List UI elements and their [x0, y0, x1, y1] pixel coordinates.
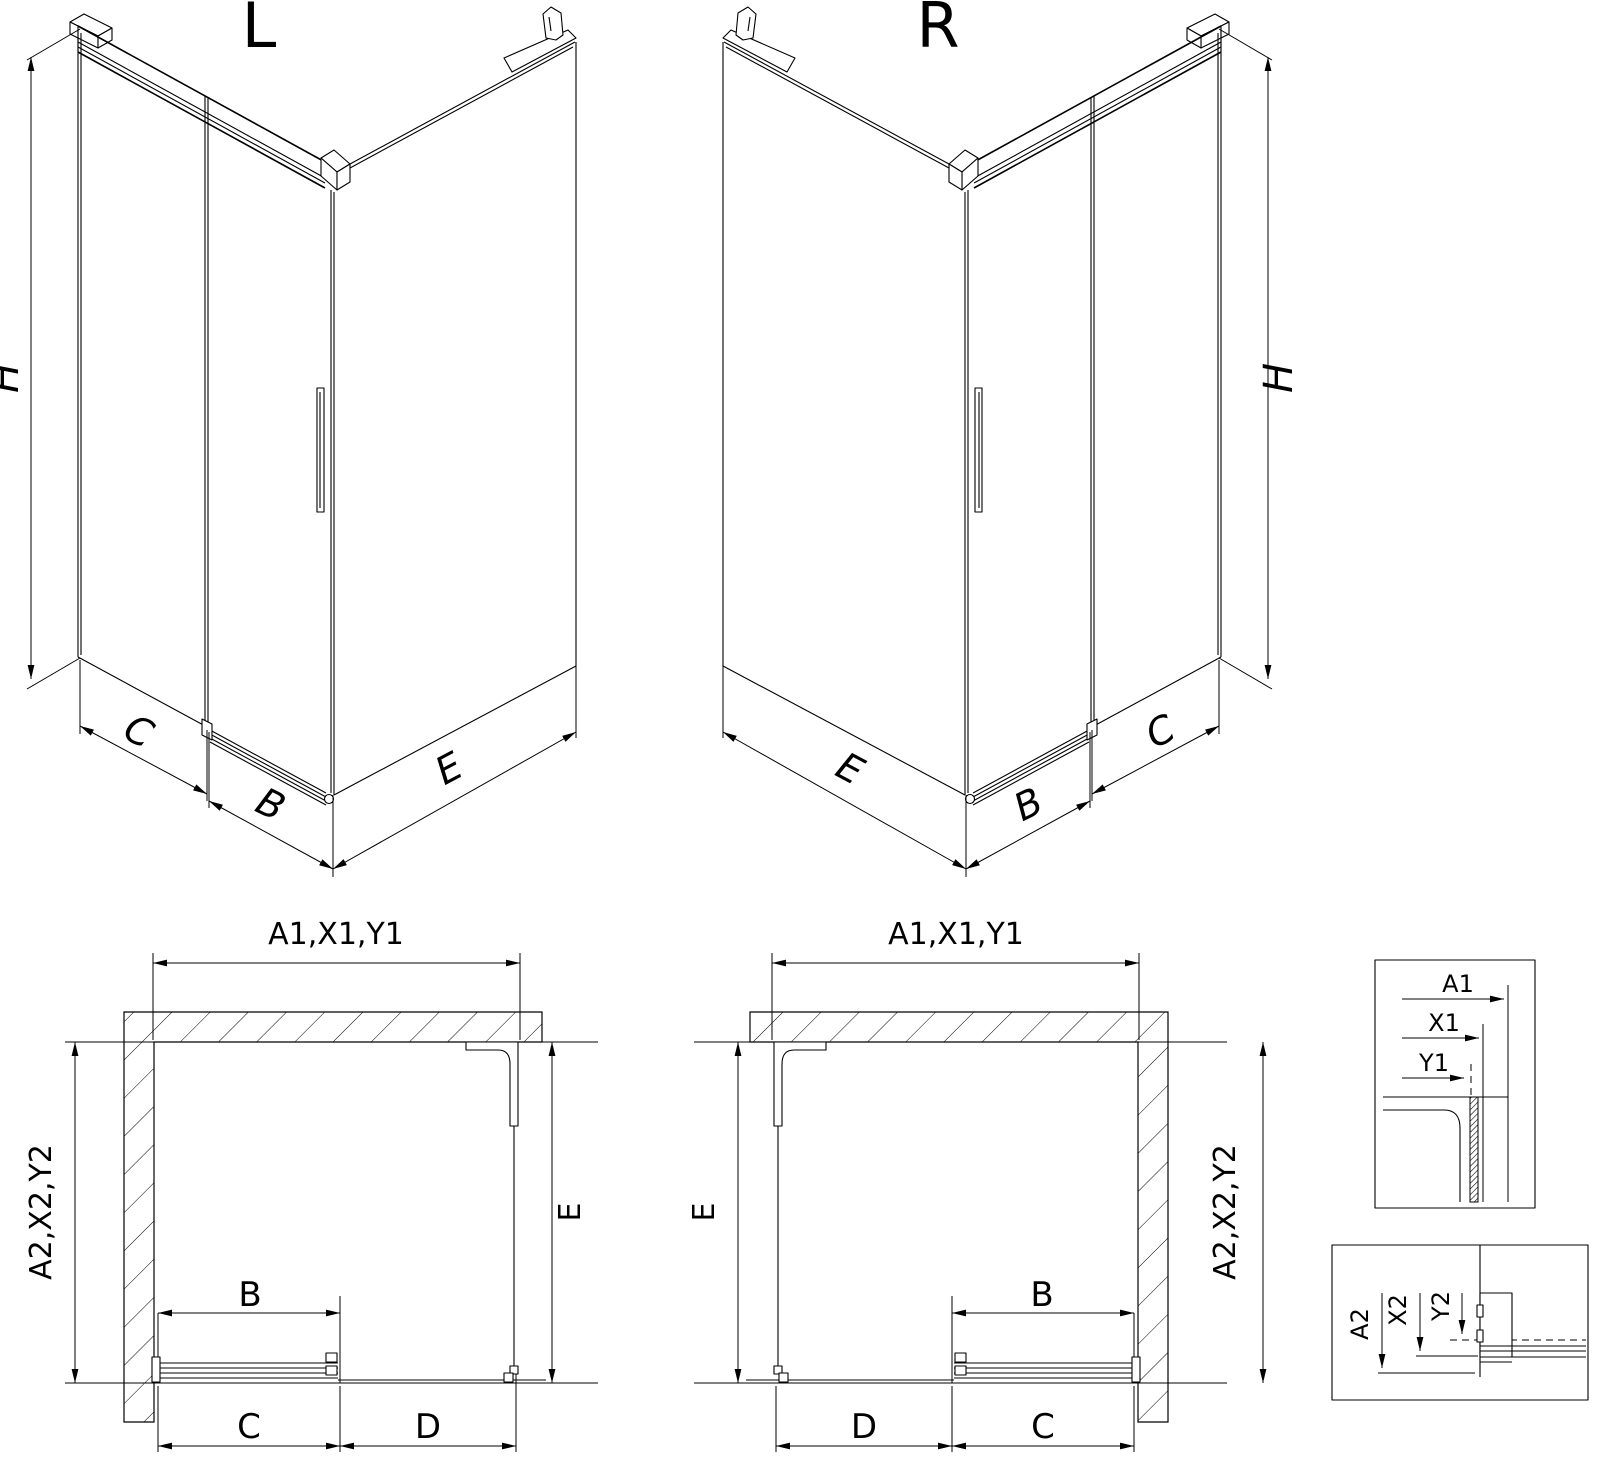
iso-left-label-e: E — [428, 743, 470, 793]
plan-view-left: A1,X1,Y1 A2,X2,Y2 E B — [24, 917, 598, 1452]
detail-bottom-label-x2: X2 — [1384, 1294, 1412, 1326]
detail-top-label-a1: A1 — [1442, 970, 1474, 998]
plan-right-dimension-e: E — [687, 1042, 738, 1383]
view-title-left: L — [242, 0, 277, 62]
plan-left-label-b: B — [238, 1275, 261, 1315]
iso-left-label-b: B — [249, 779, 292, 830]
plan-left-door-rail — [152, 1353, 546, 1382]
plan-left-label-d: D — [415, 1407, 441, 1447]
detail-top-glass-edge — [1470, 1097, 1478, 1202]
plan-left-dimension-b: B — [158, 1275, 340, 1383]
plan-left-dimension-a2: A2,X2,Y2 — [24, 1042, 75, 1383]
detail-top-dimension-y1: Y1 — [1402, 1049, 1471, 1097]
plan-left-label-a1: A1,X1,Y1 — [268, 917, 404, 952]
iso-right-geometry — [723, 7, 1272, 877]
iso-view-left: L H C B E — [0, 0, 576, 877]
view-title-right: R — [916, 0, 959, 62]
plan-right-label-b: B — [1030, 1275, 1053, 1315]
detail-view-top: A1 X1 Y1 — [1375, 960, 1535, 1208]
plan-right-label-d: D — [851, 1407, 877, 1447]
plan-left-dimension-e: E — [552, 1042, 588, 1383]
detail-top-label-y1: Y1 — [1418, 1049, 1449, 1077]
iso-right-label-h: H — [1256, 363, 1302, 393]
detail-top-dimension-a1: A1 — [1402, 970, 1508, 1202]
iso-view-right: R H C B E — [723, 0, 1302, 877]
iso-right-label-b: B — [1007, 779, 1050, 830]
plan-right-label-e: E — [687, 1203, 722, 1222]
detail-view-bottom: A2 X2 Y2 — [1332, 1245, 1588, 1400]
plan-left-dimension-c: C — [158, 1374, 516, 1452]
drawing-page: L H C B E R H C B E A1,X1,Y1 A2,X2,Y2 — [0, 0, 1600, 1458]
iso-left-geometry — [27, 7, 576, 877]
plan-left-label-e: E — [553, 1203, 588, 1222]
plan-right-dimension-d: D — [776, 1386, 1134, 1452]
plan-right-dimension-c: C — [952, 1407, 1134, 1447]
detail-bottom-rail-profile — [1477, 1293, 1586, 1362]
plan-right-door-rail — [746, 1353, 1140, 1382]
plan-view-right: A1,X1,Y1 E A2,X2,Y2 B — [687, 917, 1263, 1452]
detail-top-wall-profile — [1383, 1097, 1508, 1202]
plan-right-label-a1: A1,X1,Y1 — [888, 917, 1024, 952]
plan-left-label-c: C — [237, 1407, 261, 1447]
plan-right-dimension-b: B — [952, 1275, 1134, 1383]
plan-right-dimension-a2: A2,X2,Y2 — [1208, 1042, 1263, 1383]
plan-left-dimension-d: D — [340, 1407, 516, 1447]
plan-left-label-a2: A2,X2,Y2 — [24, 1144, 59, 1280]
detail-bottom-label-y2: Y2 — [1427, 1291, 1455, 1322]
detail-bottom-label-a2: A2 — [1346, 1308, 1374, 1340]
detail-top-label-x1: X1 — [1428, 1009, 1460, 1037]
technical-drawing: L H C B E R H C B E A1,X1,Y1 A2,X2,Y2 — [0, 0, 1600, 1458]
iso-right-label-e: E — [829, 743, 871, 793]
plan-right-label-c: C — [1031, 1407, 1055, 1447]
iso-left-label-h: H — [0, 363, 28, 393]
plan-left-fixed-panel — [466, 1042, 518, 1374]
plan-right-fixed-panel — [774, 1042, 826, 1374]
plan-right-label-a2: A2,X2,Y2 — [1208, 1144, 1243, 1280]
